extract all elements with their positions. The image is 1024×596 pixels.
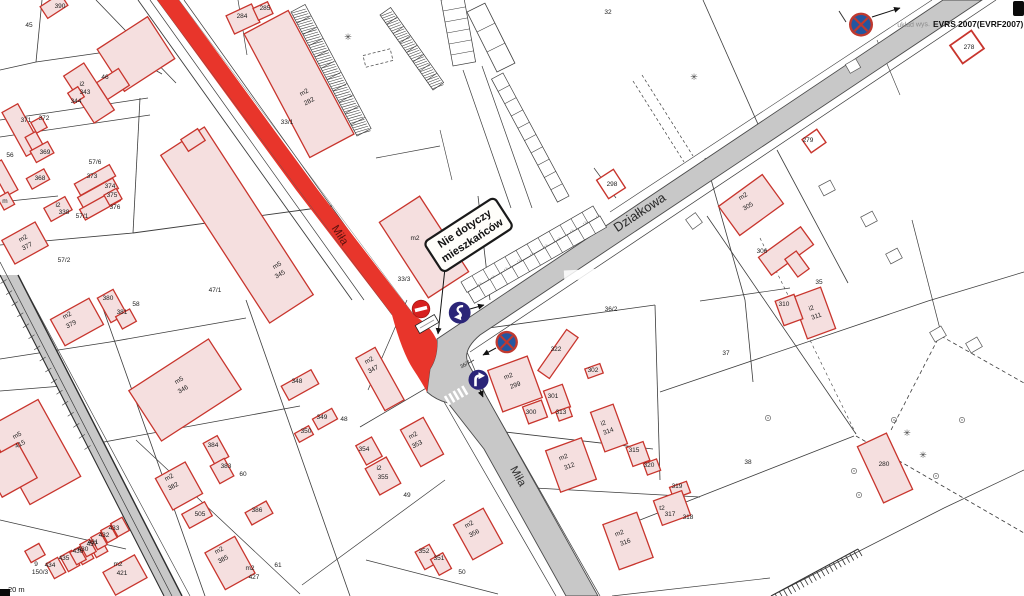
- svg-text:306: 306: [757, 248, 768, 255]
- svg-text:49: 49: [403, 492, 411, 499]
- svg-text:32: 32: [604, 9, 612, 16]
- svg-text:432: 432: [99, 532, 110, 539]
- svg-text:50: 50: [458, 569, 466, 576]
- svg-text:35: 35: [815, 279, 823, 286]
- svg-text:38: 38: [744, 459, 752, 466]
- svg-text:371: 371: [21, 117, 32, 124]
- svg-text:300: 300: [526, 409, 537, 416]
- svg-text:✳: ✳: [919, 450, 927, 460]
- svg-text:47/1: 47/1: [209, 287, 222, 294]
- svg-text:EVRS 2007(EVRF2007): EVRS 2007(EVRF2007): [933, 19, 1024, 29]
- svg-text:427: 427: [249, 574, 260, 581]
- svg-text:376: 376: [110, 204, 121, 211]
- svg-text:381: 381: [117, 309, 128, 316]
- svg-text:48: 48: [340, 416, 348, 423]
- svg-text:373: 373: [87, 173, 98, 180]
- svg-text:m: m: [2, 198, 7, 205]
- svg-text:45: 45: [25, 22, 33, 29]
- svg-text:284: 284: [237, 13, 248, 20]
- svg-text:317: 317: [665, 511, 676, 518]
- svg-text:372: 372: [39, 115, 50, 122]
- svg-text:390: 390: [55, 3, 66, 10]
- svg-text:310: 310: [779, 301, 790, 308]
- svg-text:354: 354: [359, 446, 370, 453]
- svg-text:315: 315: [629, 447, 640, 454]
- svg-text:279: 279: [803, 137, 814, 144]
- svg-text:374: 374: [105, 183, 116, 190]
- svg-text:285: 285: [260, 5, 271, 12]
- svg-text:37: 37: [722, 350, 730, 357]
- svg-text:319: 319: [672, 483, 683, 490]
- svg-text:375: 375: [107, 192, 118, 199]
- svg-text:320: 320: [644, 462, 655, 469]
- svg-text:33/3: 33/3: [398, 276, 411, 283]
- svg-text:✳: ✳: [690, 72, 698, 82]
- svg-text:20 m: 20 m: [8, 585, 25, 594]
- svg-text:338: 338: [59, 209, 70, 216]
- svg-text:318: 318: [683, 514, 694, 521]
- svg-text:431: 431: [88, 539, 99, 546]
- svg-text:150/3: 150/3: [32, 569, 49, 576]
- svg-text:386: 386: [252, 507, 263, 514]
- svg-text:430: 430: [78, 546, 89, 553]
- svg-text:434: 434: [45, 562, 56, 569]
- svg-text:421: 421: [117, 570, 128, 577]
- svg-text:57/2: 57/2: [58, 257, 71, 264]
- svg-text:313: 313: [556, 409, 567, 416]
- svg-text:348: 348: [292, 378, 303, 385]
- svg-text:m2: m2: [410, 235, 419, 242]
- svg-text:✳: ✳: [344, 32, 352, 42]
- svg-text:352: 352: [419, 548, 430, 555]
- svg-text:350: 350: [301, 428, 312, 435]
- svg-text:i2: i2: [79, 81, 84, 88]
- svg-text:33/1: 33/1: [281, 119, 294, 126]
- svg-text:384: 384: [208, 442, 219, 449]
- svg-text:349: 349: [317, 414, 328, 421]
- svg-text:355: 355: [378, 474, 389, 481]
- svg-text:435: 435: [59, 555, 70, 562]
- svg-text:301: 301: [548, 393, 559, 400]
- svg-text:368: 368: [35, 175, 46, 182]
- svg-text:369: 369: [40, 149, 51, 156]
- svg-text:m2: m2: [113, 561, 122, 568]
- svg-text:58: 58: [132, 301, 140, 308]
- svg-text:układ wys.: układ wys.: [897, 21, 930, 29]
- svg-text:380: 380: [103, 295, 114, 302]
- svg-text:i2: i2: [376, 465, 381, 472]
- svg-text:46: 46: [101, 74, 109, 81]
- svg-text:298: 298: [607, 181, 618, 188]
- svg-text:61: 61: [274, 562, 282, 569]
- svg-text:322: 322: [551, 346, 562, 353]
- svg-text:433: 433: [109, 525, 120, 532]
- svg-text:344: 344: [71, 98, 82, 105]
- svg-text:57/6: 57/6: [89, 159, 102, 166]
- svg-text:9: 9: [34, 561, 38, 568]
- svg-text:505: 505: [195, 511, 206, 518]
- svg-text:36/2: 36/2: [605, 306, 618, 313]
- svg-text:278: 278: [964, 44, 975, 51]
- svg-text:280: 280: [879, 461, 890, 468]
- svg-text:351: 351: [434, 555, 445, 562]
- svg-text:✳: ✳: [903, 428, 911, 438]
- svg-text:i2: i2: [55, 202, 60, 209]
- svg-text:56: 56: [6, 152, 14, 159]
- svg-text:383: 383: [221, 463, 232, 470]
- svg-text:60: 60: [239, 471, 247, 478]
- svg-text:302: 302: [588, 367, 599, 374]
- svg-text:m2: m2: [245, 565, 254, 572]
- svg-text:343: 343: [80, 89, 91, 96]
- svg-text:57/1: 57/1: [76, 213, 89, 220]
